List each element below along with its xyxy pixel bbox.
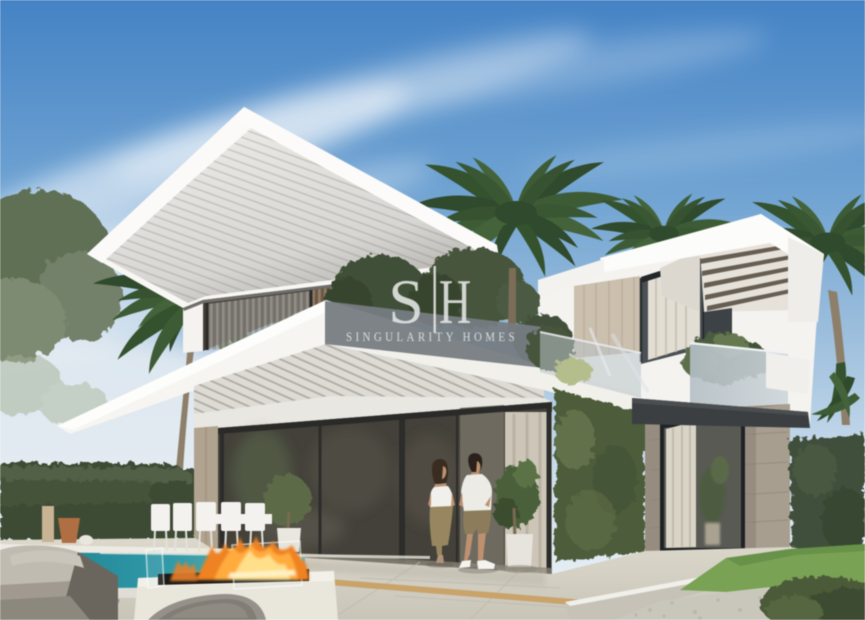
svg-text:SINGULARITY HOMES: SINGULARITY HOMES: [346, 329, 518, 344]
svg-text:H: H: [439, 266, 471, 337]
svg-text:S: S: [388, 266, 424, 337]
